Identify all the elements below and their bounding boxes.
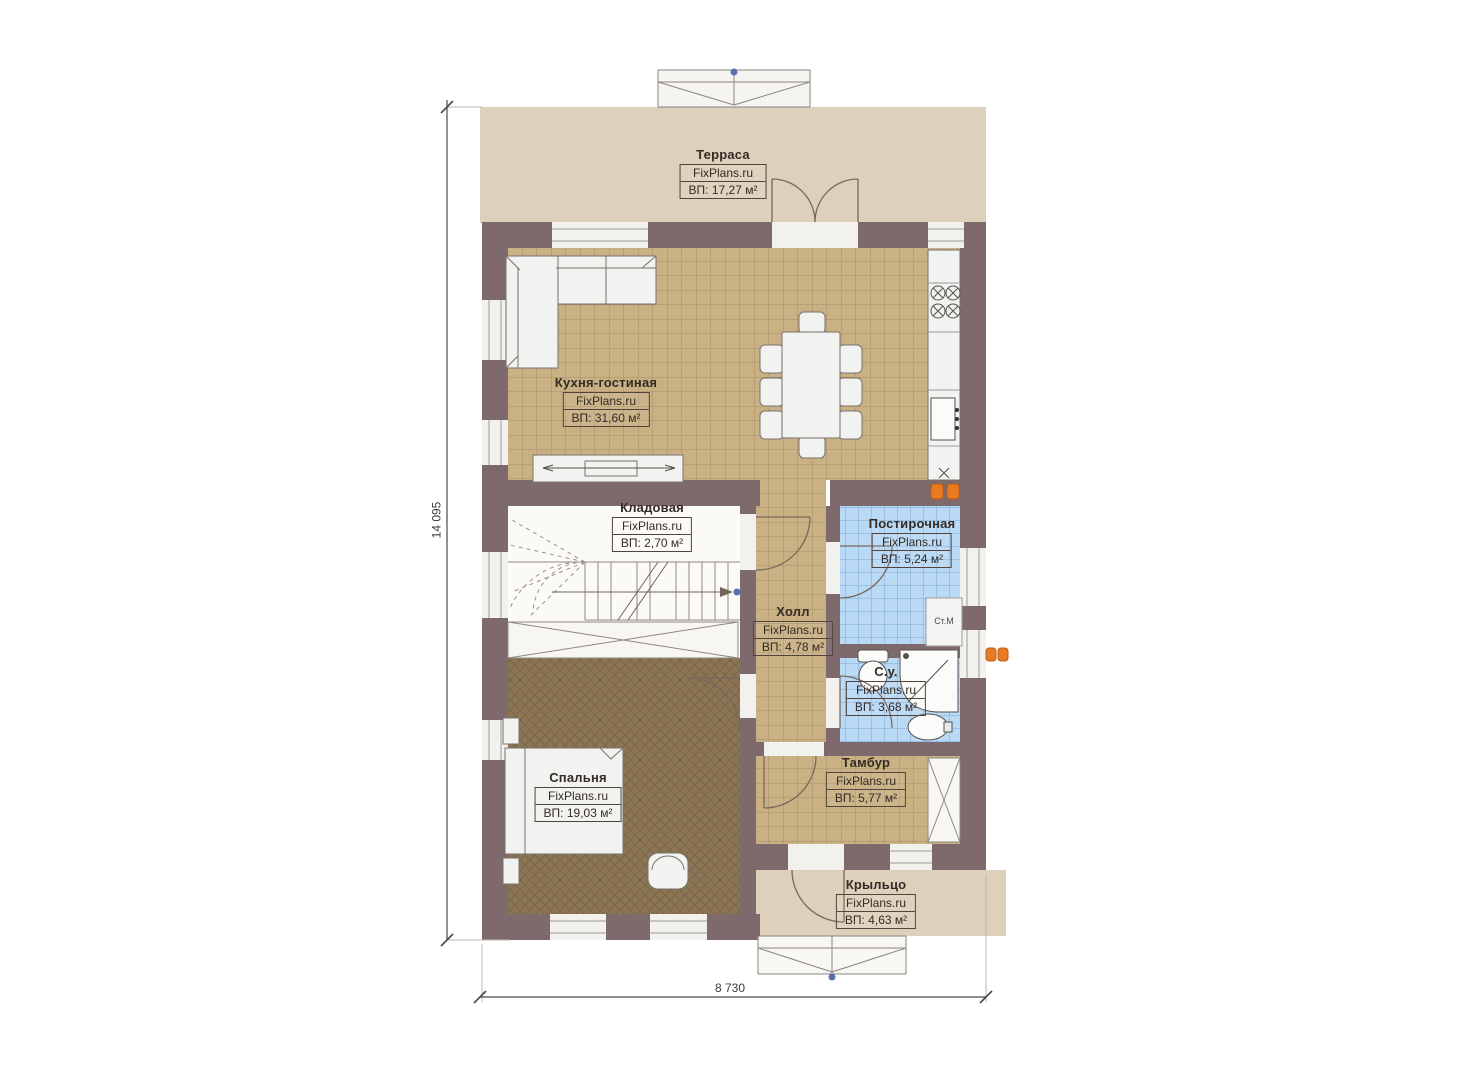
laundry-door-opening bbox=[826, 542, 840, 594]
room-brand: FixPlans.ru bbox=[613, 518, 691, 534]
room-area: ВП: 2,70 м² bbox=[613, 534, 691, 551]
room-name: Кухня-гостиная bbox=[555, 375, 657, 390]
room-label-porch: Крыльцо FixPlans.ru ВП: 4,63 м² bbox=[836, 877, 916, 929]
wardrobe bbox=[508, 622, 738, 658]
room-area: ВП: 4,63 м² bbox=[837, 911, 915, 928]
tv-stand bbox=[533, 455, 683, 482]
dining-chair bbox=[760, 378, 784, 406]
window bbox=[890, 844, 932, 870]
room-name: Спальня bbox=[535, 770, 622, 785]
dining-chair bbox=[838, 345, 862, 373]
armchair bbox=[648, 853, 688, 889]
dimension-width-label: 8 730 bbox=[715, 981, 745, 995]
room-area: ВП: 3,68 м² bbox=[847, 698, 925, 715]
room-name: Крыльцо bbox=[836, 877, 916, 892]
vestibule-door-opening bbox=[764, 742, 824, 756]
room-brand: FixPlans.ru bbox=[681, 165, 766, 181]
dining-chair bbox=[760, 345, 784, 373]
dimension-height-label: 14 095 bbox=[429, 502, 443, 539]
nightstand bbox=[503, 718, 519, 744]
room-label-terrace: Терраса FixPlans.ru ВП: 17,27 м² bbox=[680, 147, 767, 199]
room-label-bathroom: С.у. FixPlans.ru ВП: 3,68 м² bbox=[846, 664, 926, 716]
direction-marker-dot bbox=[734, 589, 741, 596]
terrace-steps bbox=[658, 69, 810, 108]
window bbox=[552, 222, 648, 248]
window bbox=[482, 300, 508, 360]
room-area: ВП: 19,03 м² bbox=[536, 804, 621, 821]
room-brand: FixPlans.ru bbox=[754, 622, 832, 638]
room-name: Терраса bbox=[680, 147, 767, 162]
room-area: ВП: 4,78 м² bbox=[754, 638, 832, 655]
room-name: Постирочная bbox=[869, 516, 956, 531]
pantry-door-opening bbox=[740, 514, 756, 570]
sink-icon bbox=[931, 398, 959, 440]
nightstand bbox=[503, 858, 519, 884]
dining-chair bbox=[838, 378, 862, 406]
washing-machine-label: Ст.М bbox=[924, 616, 964, 626]
dining-chair bbox=[799, 312, 825, 334]
window bbox=[482, 420, 508, 465]
room-name: Холл bbox=[753, 604, 833, 619]
room-area: ВП: 5,24 м² bbox=[873, 550, 951, 567]
room-label-pantry: Кладовая FixPlans.ru ВП: 2,70 м² bbox=[612, 500, 692, 552]
bedroom-door-opening bbox=[740, 674, 756, 718]
room-brand: FixPlans.ru bbox=[847, 682, 925, 698]
room-label-bedroom: Спальня FixPlans.ru ВП: 19,03 м² bbox=[535, 770, 622, 822]
direction-marker-dot bbox=[731, 69, 738, 76]
dining-chair bbox=[799, 436, 825, 458]
terrace-door-opening bbox=[772, 222, 858, 248]
entrance-door-opening bbox=[788, 844, 844, 870]
window bbox=[928, 222, 964, 248]
window bbox=[960, 548, 986, 606]
room-area: ВП: 31,60 м² bbox=[564, 409, 649, 426]
direction-marker-dot bbox=[829, 974, 836, 981]
room-name: Тамбур bbox=[826, 755, 906, 770]
room-name: Кладовая bbox=[612, 500, 692, 515]
room-brand: FixPlans.ru bbox=[827, 773, 905, 789]
porch-steps bbox=[758, 936, 906, 981]
room-label-laundry: Постирочная FixPlans.ru ВП: 5,24 м² bbox=[869, 516, 956, 568]
bathroom-door-opening bbox=[826, 678, 840, 728]
room-name: С.у. bbox=[846, 664, 926, 679]
room-brand: FixPlans.ru bbox=[564, 393, 649, 409]
room-label-kitchen-living: Кухня-гостиная FixPlans.ru ВП: 31,60 м² bbox=[555, 375, 657, 427]
room-label-hall: Холл FixPlans.ru ВП: 4,78 м² bbox=[753, 604, 833, 656]
dining-chair bbox=[760, 411, 784, 439]
window bbox=[550, 914, 606, 940]
window bbox=[650, 914, 707, 940]
room-area: ВП: 5,77 м² bbox=[827, 789, 905, 806]
room-label-vestibule: Тамбур FixPlans.ru ВП: 5,77 м² bbox=[826, 755, 906, 807]
floor-plan-page: Терраса FixPlans.ru ВП: 17,27 м² Кухня-г… bbox=[0, 0, 1474, 1080]
dining-chair bbox=[838, 411, 862, 439]
room-brand: FixPlans.ru bbox=[536, 788, 621, 804]
kitchen-counter bbox=[928, 250, 960, 480]
room-area: ВП: 17,27 м² bbox=[681, 181, 766, 198]
window bbox=[960, 630, 986, 678]
room-brand: FixPlans.ru bbox=[837, 895, 915, 911]
window bbox=[482, 552, 508, 618]
room-brand: FixPlans.ru bbox=[873, 534, 951, 550]
wardrobe bbox=[928, 758, 960, 842]
